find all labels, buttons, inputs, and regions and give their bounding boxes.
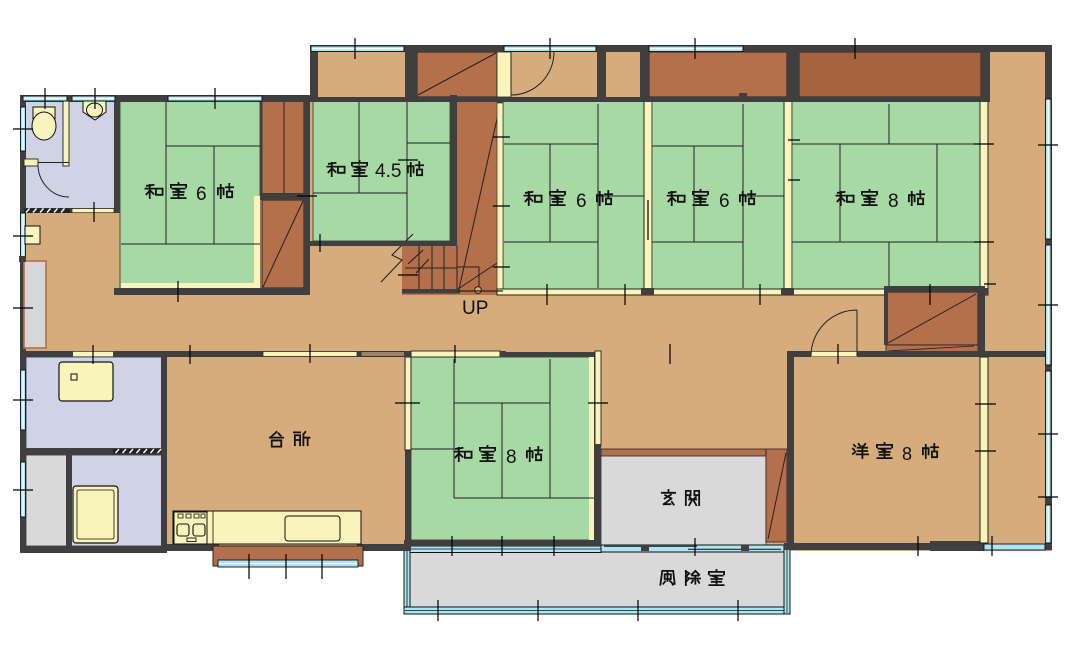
svg-text:6: 6 — [196, 184, 207, 205]
svg-text:8: 8 — [888, 191, 899, 212]
svg-text:8: 8 — [506, 447, 517, 468]
svg-text:4.5: 4.5 — [375, 161, 401, 182]
svg-text:8: 8 — [902, 444, 912, 464]
svg-text:UP: UP — [462, 298, 488, 319]
svg-text:6: 6 — [576, 191, 587, 212]
svg-text:6: 6 — [719, 191, 730, 212]
